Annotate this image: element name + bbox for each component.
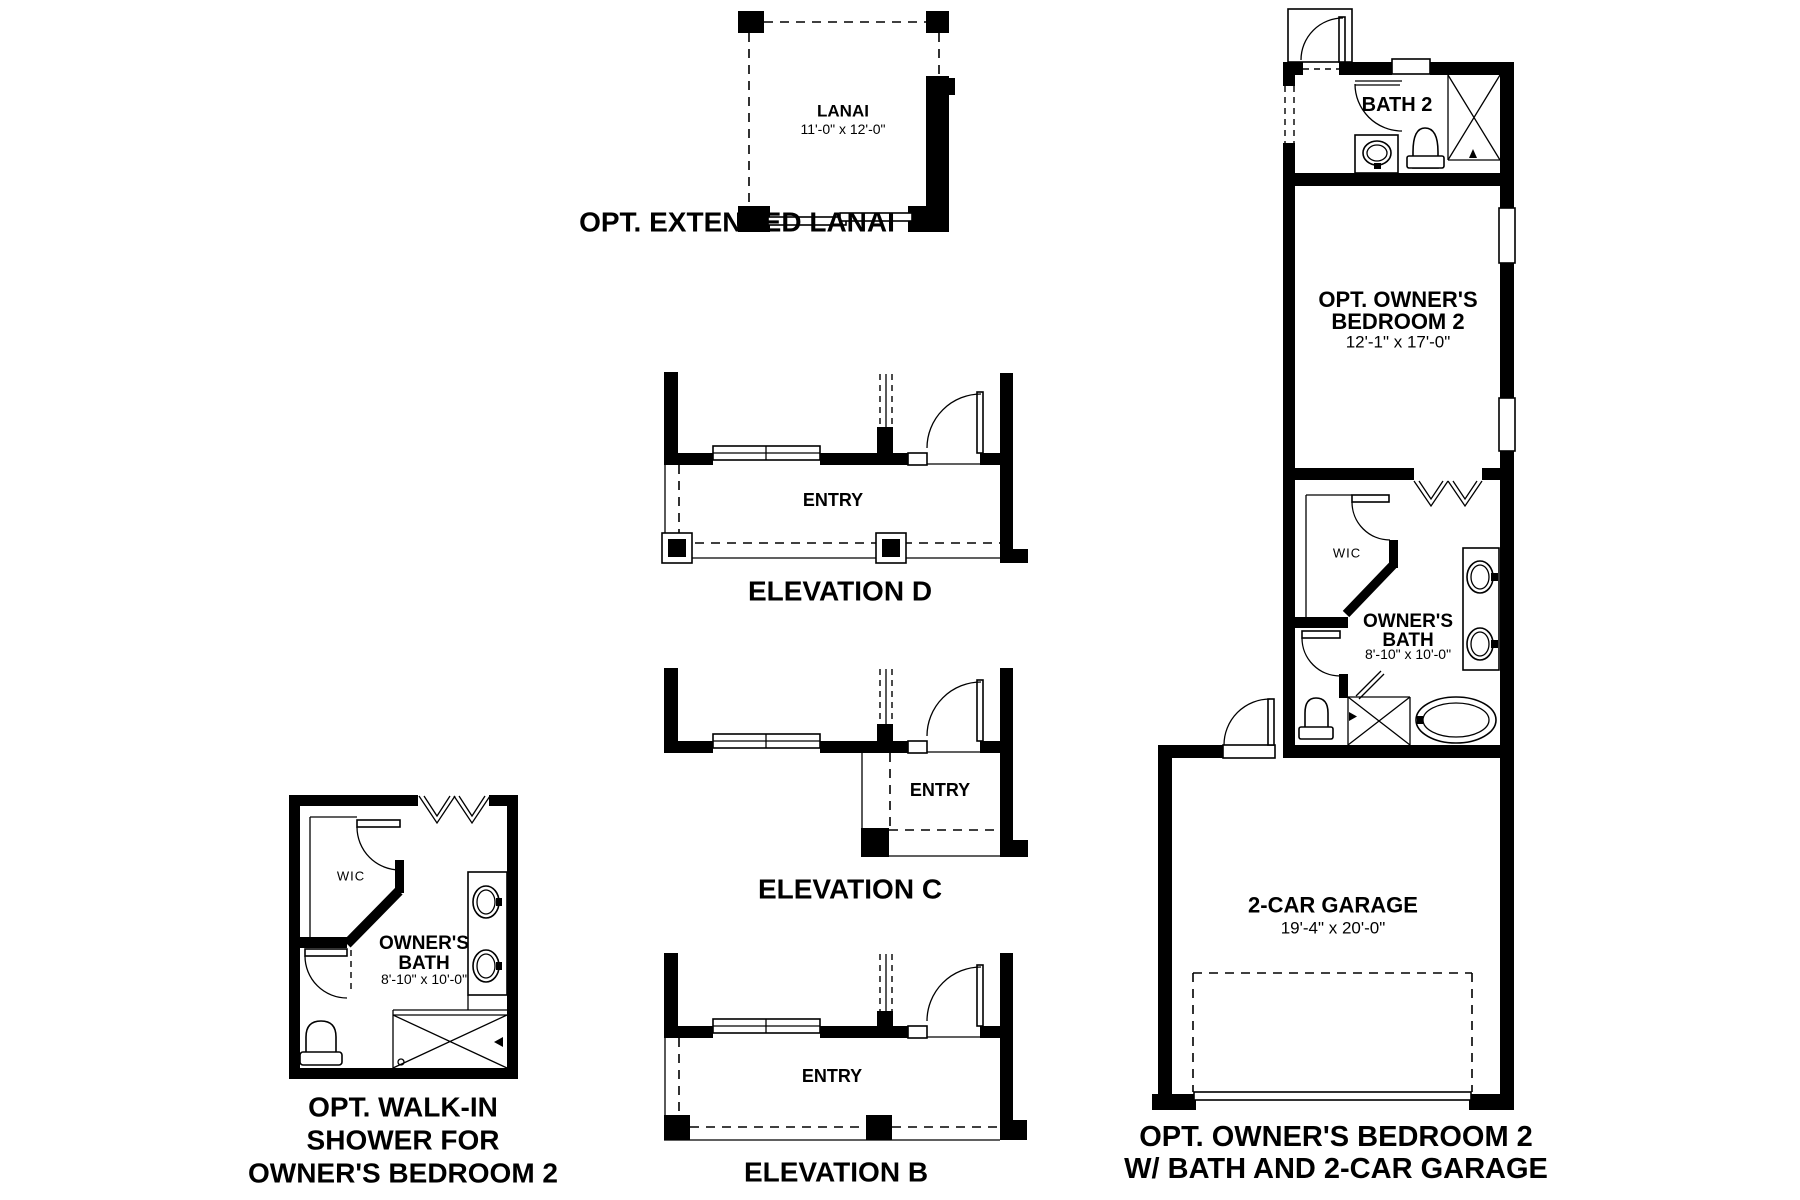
porch-post [876, 533, 906, 563]
elevation-c-entry-label: ENTRY [910, 780, 970, 800]
bedroom2-caption: OPT. OWNER'S BEDROOM 2 W/ BATH AND 2-CAR… [1124, 1121, 1548, 1185]
bathtub-icon [1416, 697, 1496, 743]
elevation-c-plan [664, 668, 1028, 857]
garage-apron-dashed [1193, 973, 1472, 1092]
elevation-b-plan [664, 953, 1027, 1140]
bedroom-french-doors [1414, 481, 1482, 506]
elevation-b-caption: ELEVATION B [744, 1156, 928, 1187]
lanai-caption: OPT. EXTENDED LANAI [579, 206, 895, 237]
elevation-d-porch-edge [662, 465, 1000, 563]
elevation-b-window [713, 1019, 820, 1033]
lanai-room-label: LANAI [817, 101, 869, 120]
vanity-counter [468, 872, 507, 1010]
elevation-d-walls [664, 372, 1028, 563]
walk-in-shower-icon [393, 1010, 507, 1068]
garage-entry-door [1223, 699, 1275, 758]
elevation-b-walls [664, 953, 1027, 1140]
owners-bath-dims: 8'-10" x 10'-0" [1365, 647, 1451, 663]
bedroom-window [1499, 398, 1515, 451]
floor-plan-options-sheet: LANAI 11'-0" x 12'-0" OPT. EXTENDED LANA… [0, 0, 1800, 1200]
elevation-b-porch-edge [664, 1038, 1000, 1140]
elevation-c-entry-recess [861, 753, 1013, 857]
elevation-c-walls [664, 668, 1028, 857]
sink-icon [1363, 141, 1391, 169]
sink-icon [1467, 561, 1498, 593]
elevation-c-caption: ELEVATION C [758, 873, 942, 904]
lanai-walls [926, 76, 955, 218]
sink-icon [473, 886, 502, 918]
wic-door [1352, 495, 1390, 540]
toilet-room-door [1302, 631, 1348, 698]
elevation-d-entry-door [908, 392, 983, 465]
garage-dims: 19'-4" x 20'-0" [1281, 918, 1386, 937]
bedroom2-label: OPT. OWNER'S BEDROOM 2 [1318, 289, 1477, 333]
bedroom2-dims: 12'-1" x 17'-0" [1346, 332, 1451, 351]
elevation-d-window [713, 446, 820, 460]
owners-bath-dims: 8'-10" x 10'-0" [381, 972, 467, 988]
elevation-d-caption: ELEVATION D [748, 575, 932, 606]
toilet-icon [1407, 128, 1444, 168]
wic-door [357, 820, 400, 870]
sink-icon [1467, 628, 1498, 660]
wic-label: WIC [1333, 547, 1361, 562]
sink-icon [473, 950, 502, 982]
toilet-icon [1299, 698, 1333, 739]
bath2-label: BATH 2 [1362, 94, 1433, 116]
bedroom-window [1499, 208, 1515, 263]
lanai-room-dims: 11'-0" x 12'-0" [800, 122, 885, 138]
elevation-b-entry-label: ENTRY [802, 1066, 862, 1086]
elevation-d-plan [662, 372, 1028, 563]
toilet-room-door [305, 949, 351, 998]
walk-in-shower-caption: OPT. WALK-IN SHOWER FOR OWNER'S BEDROOM … [248, 1091, 558, 1190]
shower-icon [1448, 75, 1500, 160]
porch-post [662, 533, 692, 563]
bath2-window [1392, 59, 1430, 74]
elevation-b-dashed-wall [880, 954, 892, 1011]
garage-label: 2-CAR GARAGE [1248, 894, 1418, 919]
front-porch [1288, 9, 1352, 62]
elevation-c-entry-door [908, 680, 983, 753]
elevation-c-window [713, 734, 820, 748]
wic-label: WIC [337, 870, 365, 885]
elevation-d-entry-label: ENTRY [803, 490, 863, 510]
toilet-icon [300, 1021, 342, 1065]
shower-icon [1348, 671, 1410, 745]
elevation-d-dashed-wall [880, 374, 892, 427]
garage-door [1194, 1092, 1471, 1100]
owners-bath-label: OWNER'S BATH [379, 934, 469, 974]
elevation-c-dashed-wall [880, 669, 892, 724]
french-doors [419, 796, 490, 823]
elevation-b-entry-door [908, 965, 983, 1038]
owners-bath-label: OWNER'S BATH [1363, 612, 1453, 650]
